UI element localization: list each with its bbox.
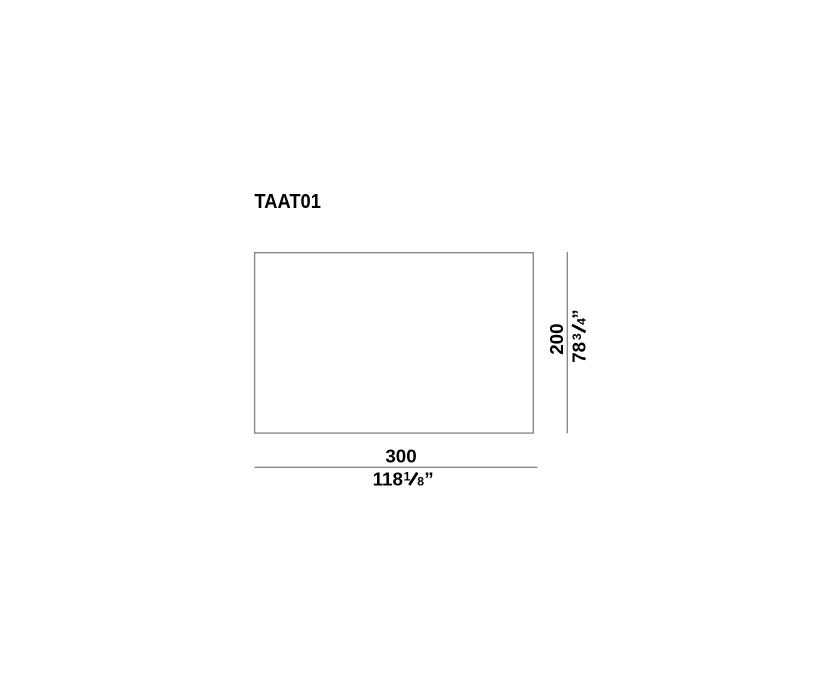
svg-text:118: 118 <box>373 468 403 489</box>
svg-text:8: 8 <box>417 474 424 488</box>
svg-text:”: ” <box>568 309 589 318</box>
svg-text:78: 78 <box>568 342 589 363</box>
svg-text:3: 3 <box>570 333 584 340</box>
svg-text:300: 300 <box>385 446 416 467</box>
svg-text:TAAT01: TAAT01 <box>254 190 321 213</box>
svg-text:1: 1 <box>404 470 411 484</box>
svg-text:”: ” <box>424 468 433 489</box>
svg-text:200: 200 <box>546 323 567 354</box>
